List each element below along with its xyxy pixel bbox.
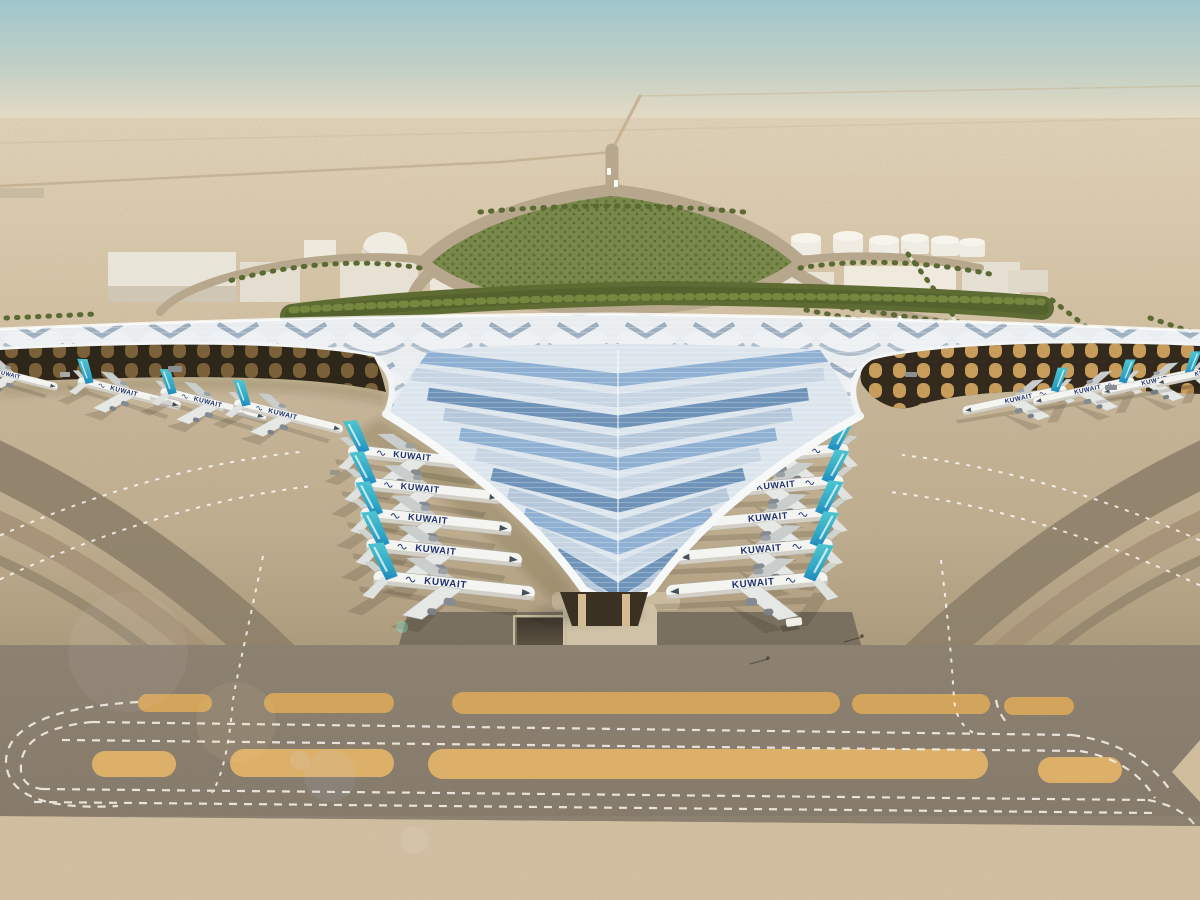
prow-column xyxy=(622,594,630,626)
prow-column xyxy=(578,594,586,626)
taxiway-islands-row1 xyxy=(138,692,1074,715)
sky xyxy=(0,0,1200,125)
sand-texture xyxy=(0,816,1200,900)
airport-rendering: KUWAIT KUWAIT xyxy=(0,0,1200,900)
terminal-entrance-prow xyxy=(560,592,648,626)
